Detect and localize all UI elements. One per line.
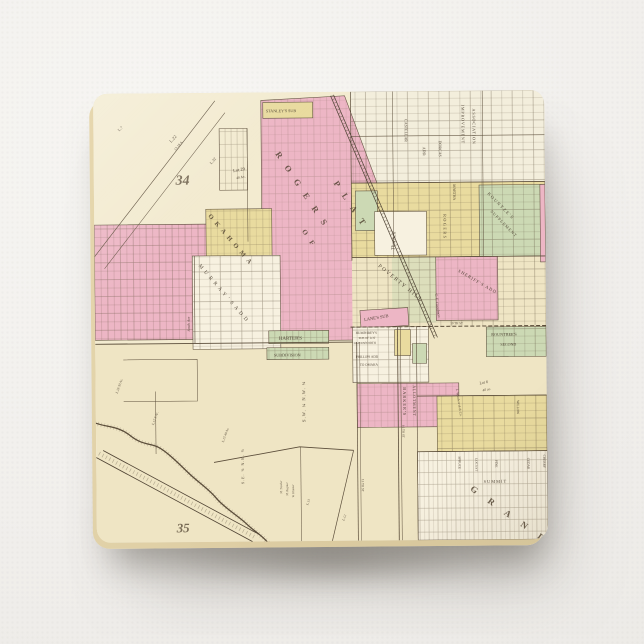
map-label-owner-1: M. Trostler [279, 480, 283, 495]
map-label-locust-st: LOCUST [474, 458, 478, 471]
map-label-thornell: Thornell [391, 231, 398, 251]
region-phillips-yellow [394, 330, 410, 356]
map-label-to-omaha: TO OMAHA [360, 363, 379, 367]
map-label-owner-3: W. Klinster [291, 483, 295, 497]
region-ne-grid [350, 90, 544, 183]
map-label-summit-st: SUMMIT [484, 479, 508, 484]
photo-background: 3435L.2213.18 A.L.32L.7Lot 2940 Ac.O K A… [0, 0, 644, 644]
map-label-dorcas-st: DORCAS [438, 141, 443, 157]
map-label-leavenworth: LEAVENWORTH [354, 341, 377, 345]
map-label-phillips-add: PHILLIPS ADD [356, 355, 379, 359]
map-label-stanleys-sub: STANLEY'S SUB [266, 108, 297, 113]
map-label-allotment: ALLOTMENT [412, 385, 417, 416]
map-label-pine-st: PINE [494, 460, 498, 468]
map-label-cedar-st: CEDAR [526, 458, 530, 470]
map-label-rountrees: ROUNTREE'S [491, 332, 517, 337]
map-label-spruce-st: SPRUCE [457, 456, 461, 469]
map-label-sw-quarter: S.W. ¼ N.W. ¼ [301, 381, 306, 422]
map-label-tenth-st: 10 TH ST [450, 321, 463, 325]
vintage-plat-map-print: 3435L.2213.18 A.L.32L.7Lot 2940 Ac.O K A… [93, 90, 548, 543]
map-label-willow-st: WILLOW [516, 400, 520, 415]
map-label-castellar-st: CASTELLAR [404, 119, 409, 142]
region-willow-grid [437, 395, 547, 452]
map-label-rogers-street: ROGERS [442, 214, 447, 239]
map-label-south-ave: South Ave [187, 316, 191, 331]
map-label-section-34: 34 [175, 174, 190, 189]
region-small-green [413, 343, 427, 363]
map-label-subdivision: SUBDIVISION [274, 352, 301, 357]
map-label-martha-st: MARTHA [452, 184, 456, 200]
map-label-association: ASSOCIATION [471, 109, 476, 145]
region-small-parcels-north-lines [219, 128, 247, 190]
map-label-harters: HARTER'S [279, 337, 303, 342]
map-label-add-label: ADD. [422, 147, 427, 157]
map-label-thirteenth-st: 13 TH ST [361, 479, 365, 492]
square-pinback-button[interactable]: 3435L.2213.18 A.L.32L.7Lot 2940 Ac.O K A… [93, 90, 548, 543]
region-edge-pink [540, 184, 546, 262]
map-label-second: SECOND [500, 342, 516, 347]
map-label-humphreys-sub: SUB OF LOT [359, 336, 376, 340]
map-label-barkers: BARKER'S [402, 387, 407, 416]
map-label-cherry-st: CHERRY [542, 455, 546, 469]
map-label-section-35: 35 [176, 520, 191, 535]
map-label-improvement: IMPROVEMENT [460, 105, 465, 144]
map-label-sixteenth-st: 16 TH ST [401, 425, 405, 438]
region-thornell-block [374, 211, 426, 255]
map-label-se-quarter: S.E. ¼ N.E. ¼ [240, 448, 245, 484]
map-label-owner-2: M. Regnier [285, 481, 289, 496]
button-face: 3435L.2213.18 A.L.32L.7Lot 2940 Ac.O K A… [93, 90, 548, 543]
map-label-humphreys: HUMPHREY'S [356, 331, 378, 335]
map-regions [93, 90, 548, 543]
